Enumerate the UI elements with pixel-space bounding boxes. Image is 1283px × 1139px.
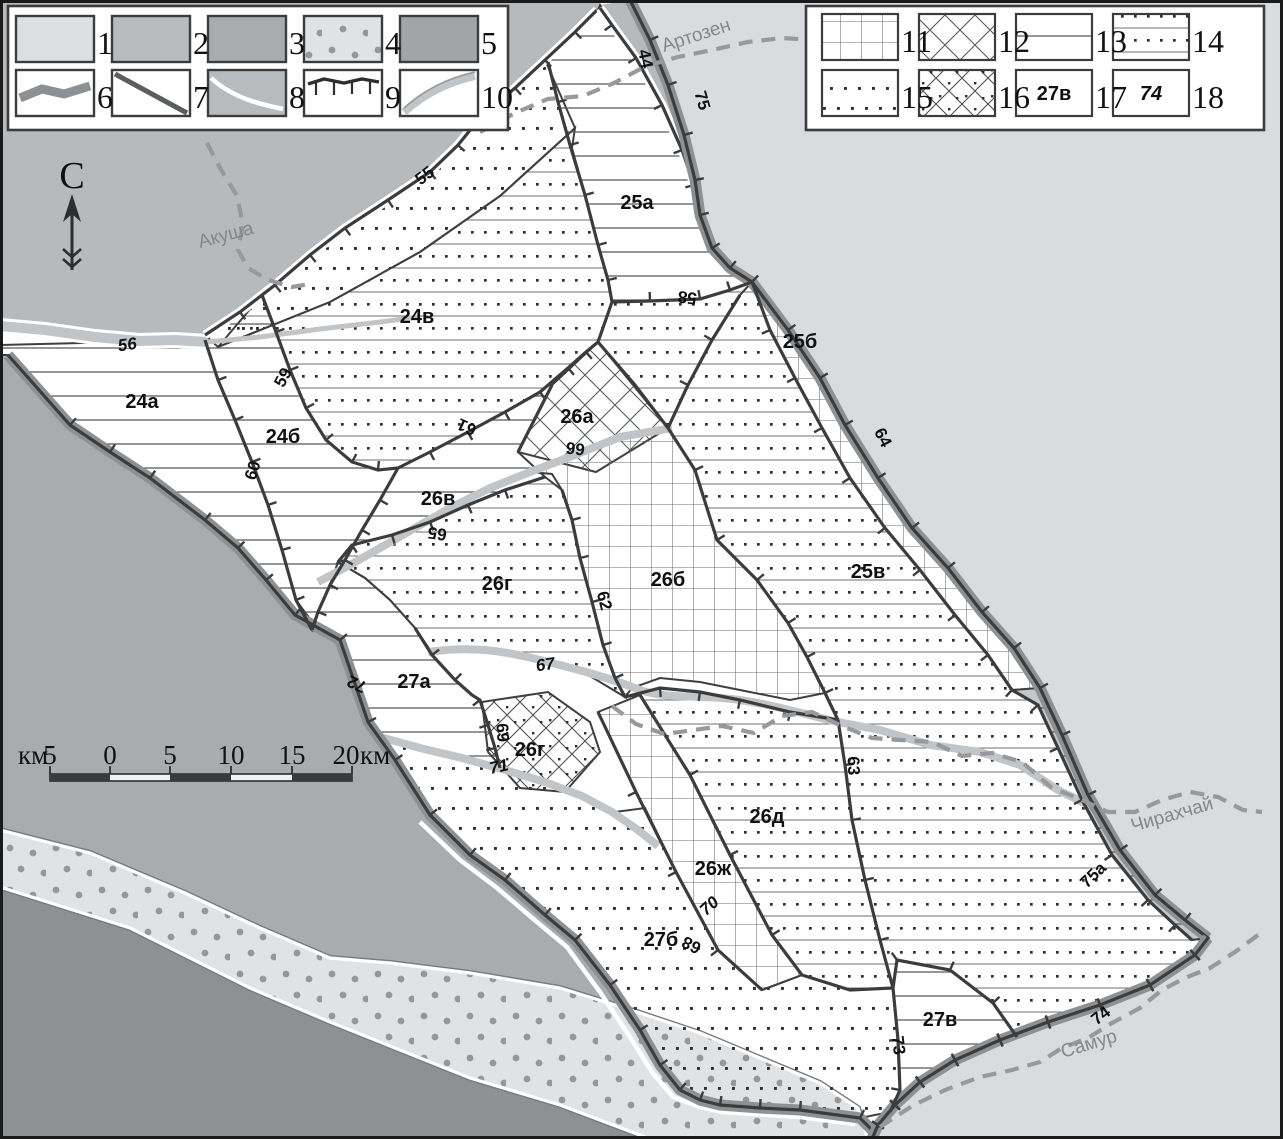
scale-tick-label: 0 xyxy=(103,740,117,770)
zone-label-26a: 26а xyxy=(560,406,594,428)
zone-label-26d: 26д xyxy=(750,806,785,828)
legend-number-11: 11 xyxy=(901,23,932,59)
legend-number-10: 10 xyxy=(481,79,513,115)
scale-tick-label: 5 xyxy=(163,740,177,770)
fault-label-73: 73 xyxy=(888,1035,909,1056)
legend-swatch-1 xyxy=(16,16,94,62)
zone-label-25a: 25а xyxy=(620,192,654,214)
zone-label-26g: 26г xyxy=(482,573,513,595)
fault-label-58: 58 xyxy=(677,287,698,308)
legend-number-6: 6 xyxy=(97,79,113,115)
legend-number-9: 9 xyxy=(385,79,401,115)
legend-number-12: 12 xyxy=(998,23,1030,59)
zone-label-26b: 26б xyxy=(651,569,686,591)
legend-number-3: 3 xyxy=(289,25,305,61)
scale-tick-label: 10 xyxy=(218,740,245,770)
zone-label-27v: 27в xyxy=(923,1009,958,1031)
legend-number-18: 18 xyxy=(1192,79,1224,115)
legend-swatch-17-label: 27в xyxy=(1037,83,1072,105)
legend-panel-left: 1 2 3 4 5 6 7 8 9 10 xyxy=(8,6,513,130)
legend-number-16: 16 xyxy=(998,79,1030,115)
zone-label-24a: 24а xyxy=(125,391,159,413)
legend-swatch-3 xyxy=(208,16,286,62)
north-label: С xyxy=(59,155,84,197)
zone-label-25v: 25в xyxy=(851,561,886,583)
map-page: Акуша Артозен Чирахчай Самур 24а 24б 24в… xyxy=(0,0,1283,1139)
map-canvas: Акуша Артозен Чирахчай Самур 24а 24б 24в… xyxy=(0,0,1283,1139)
legend-swatch-15 xyxy=(822,70,898,116)
fault-label-63: 63 xyxy=(844,756,864,776)
scale-tick-label: 20 xyxy=(333,740,360,770)
fault-label-71: 71 xyxy=(488,755,510,778)
scale-tick-label: 15 xyxy=(279,740,306,770)
zone-label-25b: 25б xyxy=(783,331,818,353)
fault-label-56: 56 xyxy=(117,334,139,356)
scale-segment xyxy=(292,774,352,781)
zone-label-27b: 27б xyxy=(644,929,679,951)
zone-label-26v: 26в xyxy=(421,488,456,510)
zone-label-26g-lower: 26г xyxy=(515,739,546,761)
legend-swatch-5 xyxy=(400,16,478,62)
scale-segment xyxy=(170,774,231,781)
scale-tick-label: 5 xyxy=(43,740,57,770)
fault-label-69: 69 xyxy=(492,723,512,743)
legend-number-5: 5 xyxy=(481,25,497,61)
legend-number-17: 17 xyxy=(1095,79,1127,115)
scale-unit-right: км xyxy=(360,740,390,770)
legend-swatch-18-label: 74 xyxy=(1140,83,1162,105)
legend-number-2: 2 xyxy=(193,25,209,61)
fault-label-66: 66 xyxy=(565,438,586,459)
legend-number-4: 4 xyxy=(385,25,401,61)
zone-label-24b: 24б xyxy=(266,426,301,448)
legend-number-15: 15 xyxy=(901,79,933,115)
scale-segment xyxy=(50,774,110,781)
legend-swatch-4 xyxy=(304,16,382,62)
legend-swatch-2 xyxy=(112,16,190,62)
legend-number-1: 1 xyxy=(97,25,113,61)
legend-number-8: 8 xyxy=(289,79,305,115)
legend-panel-right: 27в 74 11 12 13 14 15 16 17 18 xyxy=(806,6,1264,130)
legend-number-13: 13 xyxy=(1095,23,1127,59)
zone-label-27a: 27а xyxy=(397,671,431,693)
legend-swatch-11 xyxy=(822,14,898,60)
legend-number-14: 14 xyxy=(1192,23,1224,59)
zone-label-26zh: 26ж xyxy=(695,858,732,880)
fault-label-65: 65 xyxy=(427,523,448,544)
zone-label-24v: 24в xyxy=(400,306,435,328)
legend-number-7: 7 xyxy=(193,79,209,115)
